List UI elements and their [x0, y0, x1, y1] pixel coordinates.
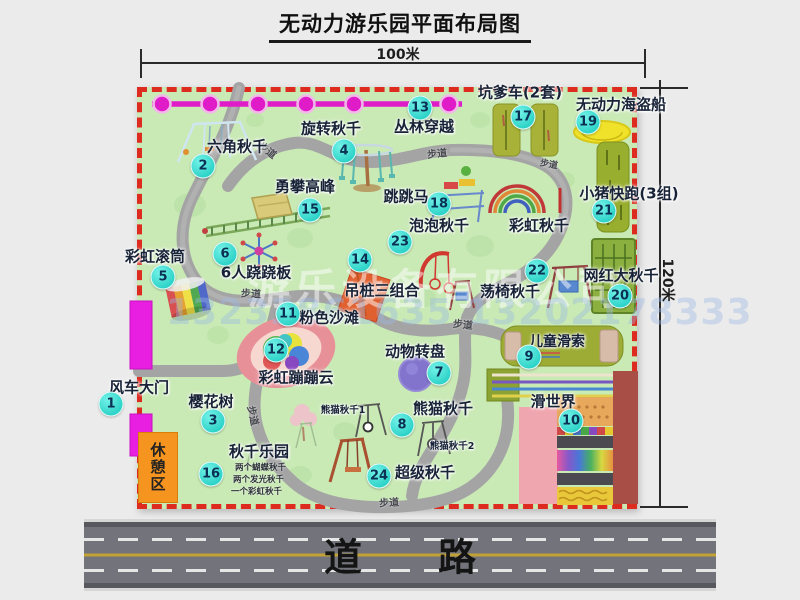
label-panda-swing-2: 熊猫秋千2: [430, 438, 475, 452]
playground-plan-screenshot: 无动力游乐园平面布局图: [0, 0, 800, 600]
badge-11: 11: [276, 302, 301, 327]
badge-21: 21: [592, 199, 617, 224]
footpath-label: 步道: [379, 493, 400, 509]
label-pink-beach: 粉色沙滩: [299, 307, 359, 328]
label-super-swing: 超级秋千: [395, 462, 455, 483]
rest-area: 休憩区: [138, 432, 178, 503]
badge-14: 14: [348, 248, 373, 273]
badge-23: 23: [388, 230, 413, 255]
height-dimension-label: 120米: [658, 258, 678, 301]
label-rocking-chair-swing: 荡椅秋千: [480, 281, 540, 302]
width-dimension-label: 100米: [376, 44, 419, 64]
badge-1: 1: [99, 392, 124, 417]
badge-15: 15: [298, 198, 323, 223]
label-swing-park: 秋千乐园: [229, 441, 289, 462]
label-jumping-horse: 跳跳马: [383, 186, 428, 207]
badge-9: 9: [517, 345, 542, 370]
swing-park-note-3: 一个彩虹秋千: [231, 485, 282, 497]
badge-5: 5: [151, 265, 176, 290]
page-title: 无动力游乐园平面布局图: [269, 8, 531, 43]
road-label: 道 路: [324, 526, 476, 581]
badge-3: 3: [201, 409, 226, 434]
label-kengdie-car: 坑爹车(2套): [478, 82, 562, 103]
label-hexagon-swing: 六角秋千: [207, 136, 267, 157]
swing-park-note-1: 两个蝴蝶秋千: [235, 461, 286, 473]
label-panda-swing: 熊猫秋千: [413, 398, 473, 419]
label-big-swing: 网红大秋千: [583, 265, 658, 286]
label-pig-run: 小猪快跑(3组): [579, 183, 678, 204]
footpath-label: 步道: [426, 144, 447, 161]
badge-4: 4: [332, 139, 357, 164]
swing-park-note-2: 两个发光秋千: [233, 473, 284, 485]
label-animal-carousel: 动物转盘: [385, 341, 445, 362]
label-climbing-peak: 勇攀高峰: [275, 176, 335, 197]
badge-10: 10: [559, 409, 584, 434]
badge-19: 19: [576, 110, 601, 135]
label-rainbow-roller: 彩虹滚筒: [125, 246, 185, 267]
road: 道 路: [84, 522, 716, 588]
badge-8: 8: [390, 413, 415, 438]
footpath-label: 步道: [452, 315, 473, 332]
badge-7: 7: [427, 361, 452, 386]
badge-24: 24: [367, 464, 392, 489]
label-bubble-swing: 泡泡秋千: [409, 215, 469, 236]
badge-20: 20: [608, 284, 633, 309]
badge-12: 12: [264, 338, 289, 363]
badge-17: 17: [511, 105, 536, 130]
label-rainbow-swing: 彩虹秋千: [509, 215, 569, 236]
footpath-label: 步道: [241, 284, 262, 300]
label-hanging-pile-combo: 吊桩三组合: [344, 280, 419, 301]
label-rotating-swing: 旋转秋千: [301, 118, 361, 139]
badge-13: 13: [408, 96, 433, 121]
badge-22: 22: [525, 259, 550, 284]
badge-2: 2: [191, 154, 216, 179]
badge-6: 6: [213, 242, 238, 267]
label-rainbow-bounce-cloud: 彩虹蹦蹦云: [258, 367, 333, 388]
label-panda-swing-1: 熊猫秋千1: [321, 402, 366, 416]
badge-16: 16: [199, 462, 224, 487]
badge-18: 18: [427, 192, 452, 217]
